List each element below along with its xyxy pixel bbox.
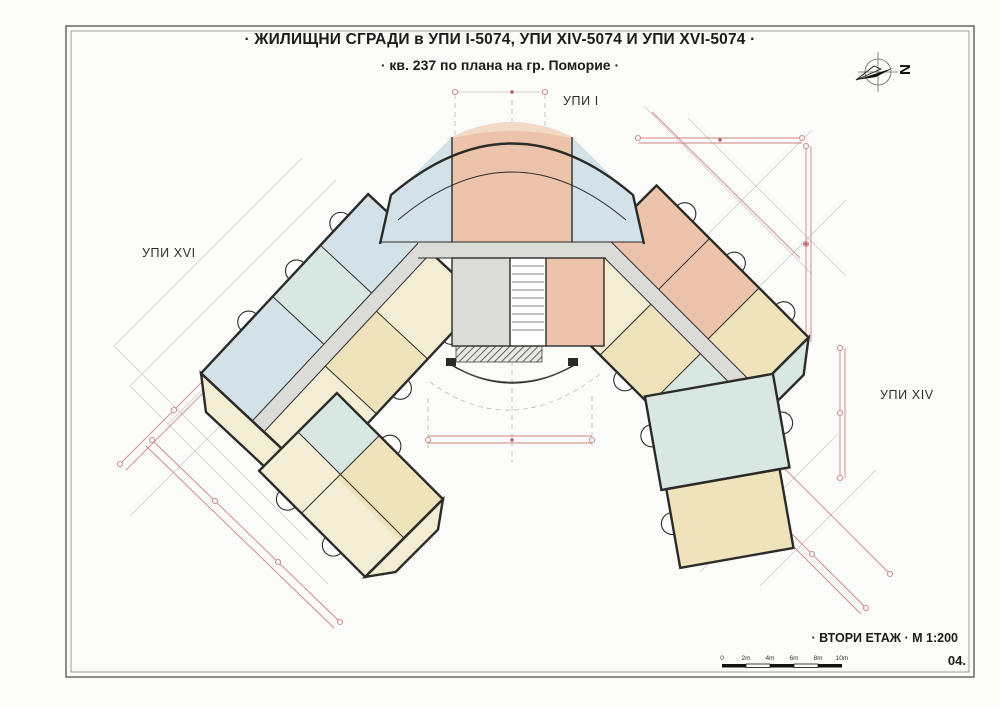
floor-title: · ВТОРИ ЕТАЖ · М 1:200 bbox=[640, 631, 958, 645]
sheet-number: 04. bbox=[928, 653, 966, 668]
site-label-upi-xiv: УПИ XIV bbox=[880, 388, 934, 402]
drawing-sheet: { "title": { "line1": "· ЖИЛИЩНИ СГРАДИ … bbox=[0, 0, 1000, 707]
site-label-upi-1: УПИ I bbox=[563, 94, 599, 108]
sheet-subtitle: · кв. 237 по плана на гр. Поморие · bbox=[0, 57, 1000, 73]
svg-text:8m: 8m bbox=[813, 655, 822, 662]
site-label-upi-xvi: УПИ XVI bbox=[142, 246, 196, 260]
svg-text:6m: 6m bbox=[789, 655, 798, 662]
svg-text:10m: 10m bbox=[836, 655, 849, 662]
svg-text:0: 0 bbox=[720, 655, 724, 662]
svg-text:4m: 4m bbox=[765, 655, 774, 662]
north-letter: N bbox=[896, 64, 913, 75]
sheet-title: · ЖИЛИЩНИ СГРАДИ в УПИ I-5074, УПИ XIV-5… bbox=[0, 31, 1000, 49]
scale-bar: 0 2m 4m 6m 8m 10m bbox=[720, 655, 848, 668]
svg-text:2m: 2m bbox=[741, 655, 750, 662]
floor-plan-drawing: 0 2m 4m 6m 8m 10m bbox=[0, 0, 1000, 707]
